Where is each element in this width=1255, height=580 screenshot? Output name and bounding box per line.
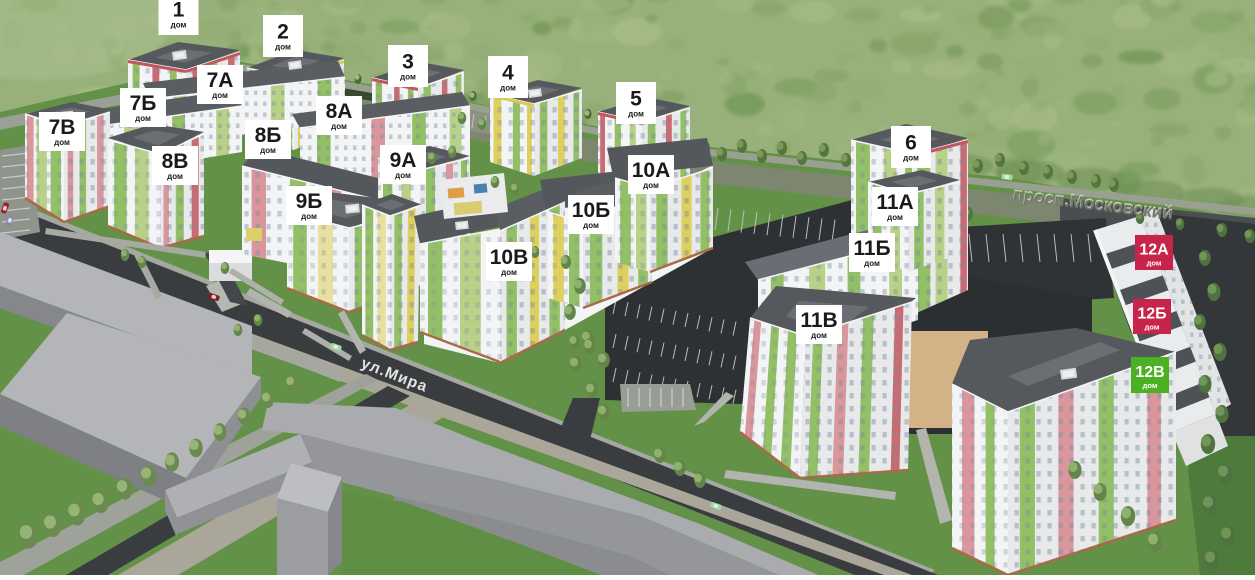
svg-text:дом: дом xyxy=(171,21,187,30)
svg-text:дом: дом xyxy=(1147,259,1162,268)
svg-text:дом: дом xyxy=(887,213,903,222)
svg-text:9А: 9А xyxy=(390,149,417,172)
svg-text:дом: дом xyxy=(54,138,70,147)
svg-text:8Б: 8Б xyxy=(255,124,282,147)
svg-text:12В: 12В xyxy=(1135,364,1164,381)
svg-text:дом: дом xyxy=(395,171,411,180)
svg-text:дом: дом xyxy=(301,212,317,221)
svg-text:3: 3 xyxy=(402,51,414,74)
svg-text:7Б: 7Б xyxy=(130,92,157,115)
svg-text:8А: 8А xyxy=(326,100,353,123)
svg-text:12Б: 12Б xyxy=(1137,306,1166,323)
svg-text:дом: дом xyxy=(331,122,347,131)
svg-text:дом: дом xyxy=(500,84,516,93)
svg-text:6: 6 xyxy=(905,132,917,155)
svg-text:1: 1 xyxy=(173,0,185,22)
svg-text:10Б: 10Б xyxy=(572,199,610,222)
svg-text:дом: дом xyxy=(260,146,276,155)
svg-text:дом: дом xyxy=(628,110,644,119)
svg-text:4: 4 xyxy=(502,62,514,85)
svg-text:7А: 7А xyxy=(207,69,234,92)
svg-text:5: 5 xyxy=(630,88,642,111)
svg-text:дом: дом xyxy=(501,268,517,277)
svg-text:7В: 7В xyxy=(49,116,76,139)
svg-text:дом: дом xyxy=(135,114,151,123)
svg-text:дом: дом xyxy=(212,91,228,100)
svg-text:12А: 12А xyxy=(1139,242,1169,259)
svg-text:дом: дом xyxy=(864,259,880,268)
svg-text:дом: дом xyxy=(583,221,599,230)
svg-text:дом: дом xyxy=(167,172,183,181)
svg-text:8В: 8В xyxy=(162,150,189,173)
svg-text:2: 2 xyxy=(277,21,289,44)
svg-text:дом: дом xyxy=(1145,323,1160,332)
svg-text:11А: 11А xyxy=(876,191,913,214)
svg-text:11Б: 11Б xyxy=(853,237,890,260)
svg-text:дом: дом xyxy=(903,154,919,163)
svg-text:10А: 10А xyxy=(632,159,671,182)
svg-text:дом: дом xyxy=(400,73,416,82)
svg-text:дом: дом xyxy=(643,181,659,190)
svg-text:дом: дом xyxy=(275,43,291,52)
svg-text:дом: дом xyxy=(1143,381,1158,390)
svg-text:9Б: 9Б xyxy=(296,190,323,213)
svg-text:10В: 10В xyxy=(490,246,529,269)
svg-text:11В: 11В xyxy=(800,309,837,332)
svg-text:дом: дом xyxy=(811,331,827,340)
